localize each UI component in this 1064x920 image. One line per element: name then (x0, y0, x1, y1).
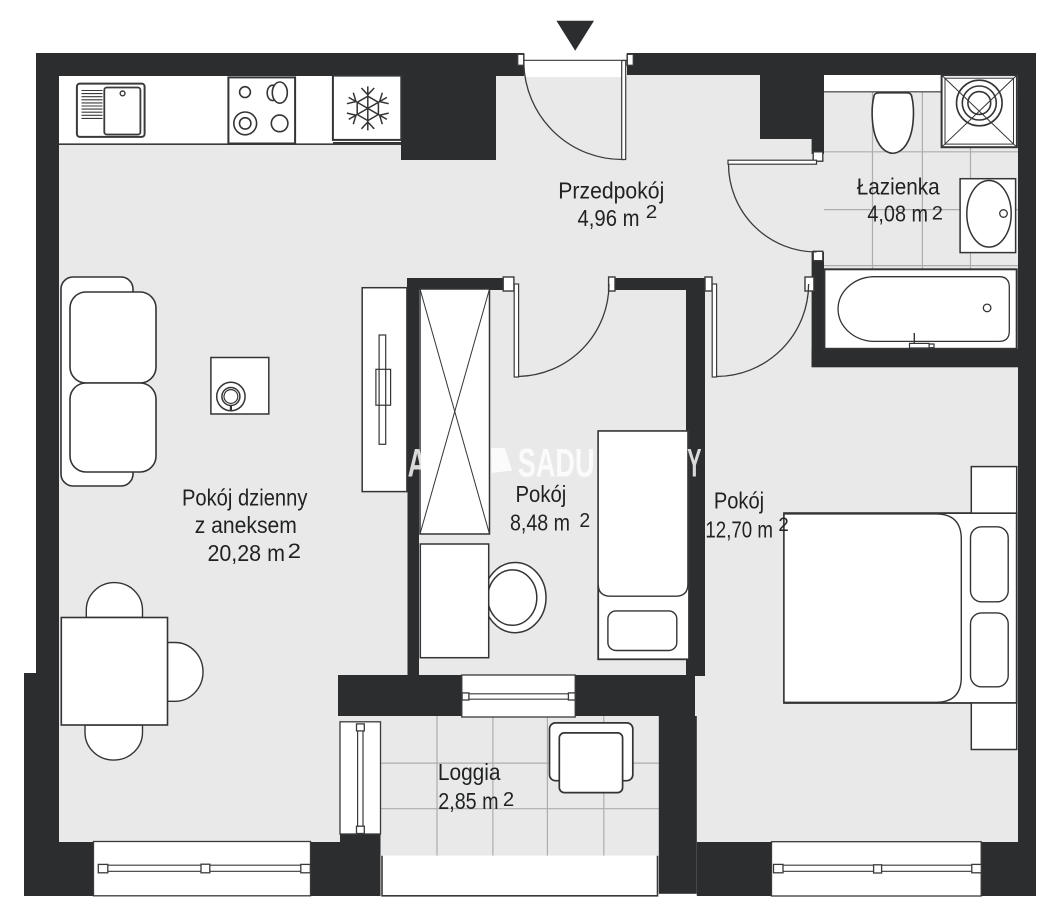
svg-text:Przedpokój: Przedpokój (558, 178, 664, 204)
svg-text:2,85 m: 2,85 m (438, 788, 498, 814)
svg-text:Łazienka: Łazienka (857, 174, 941, 200)
svg-text:z aneksem: z aneksem (195, 512, 297, 538)
svg-text:4,08 m: 4,08 m (867, 201, 928, 227)
svg-text:20,28 m: 20,28 m (207, 540, 285, 566)
svg-text:2: 2 (503, 789, 514, 811)
svg-text:Loggia: Loggia (438, 759, 502, 785)
svg-text:2: 2 (646, 201, 658, 222)
svg-text:A: A (408, 442, 427, 486)
svg-text:2: 2 (288, 540, 301, 563)
svg-text:Pokój dzienny: Pokój dzienny (182, 485, 308, 511)
svg-text:8,48 m: 8,48 m (510, 510, 570, 536)
svg-text:Pokój: Pokój (714, 488, 764, 514)
svg-text:2: 2 (579, 510, 590, 532)
svg-text:2: 2 (932, 203, 943, 224)
svg-text:4,96 m: 4,96 m (578, 205, 640, 231)
svg-text:Y: Y (687, 442, 702, 486)
svg-text:SADU: SADU (518, 442, 595, 486)
svg-text:2: 2 (778, 515, 788, 536)
svg-text:12,70 m: 12,70 m (705, 516, 773, 542)
